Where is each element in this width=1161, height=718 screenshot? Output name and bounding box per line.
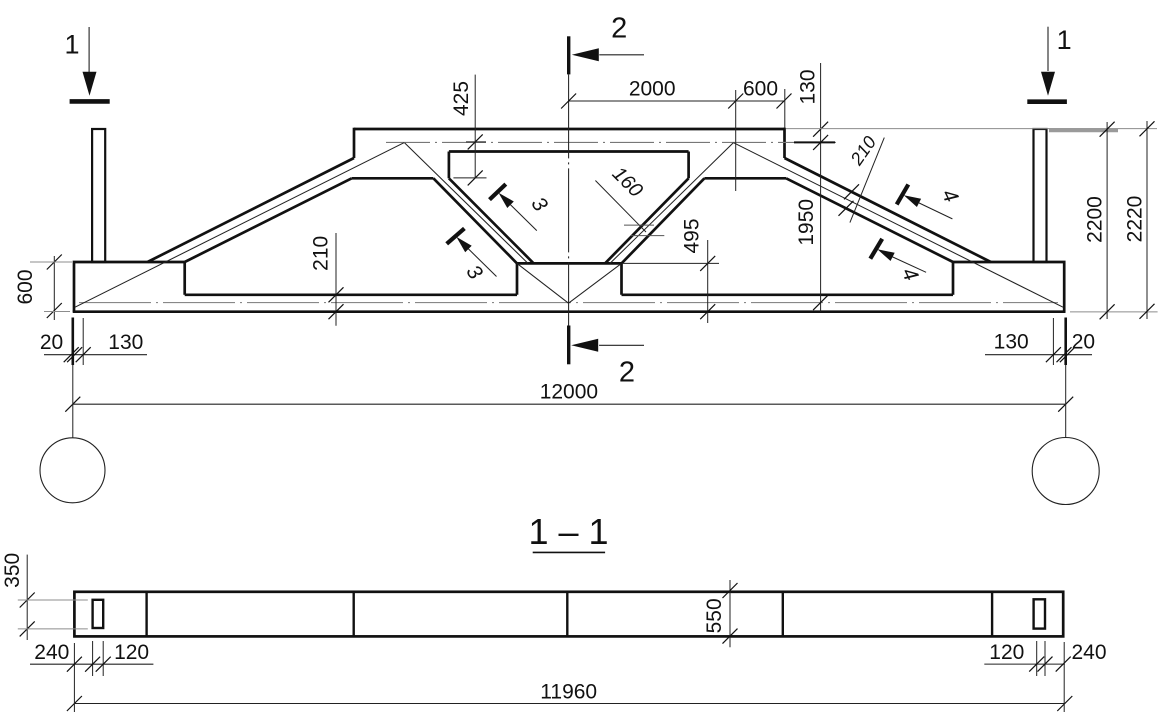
svg-text:160: 160 bbox=[608, 163, 647, 202]
svg-text:130: 130 bbox=[797, 69, 820, 104]
svg-text:20: 20 bbox=[40, 331, 63, 354]
svg-text:240: 240 bbox=[34, 641, 69, 664]
svg-text:350: 350 bbox=[1, 553, 24, 588]
svg-text:2: 2 bbox=[611, 12, 627, 44]
svg-text:2200: 2200 bbox=[1084, 196, 1107, 243]
svg-text:11960: 11960 bbox=[540, 681, 597, 704]
svg-text:130: 130 bbox=[108, 331, 143, 354]
svg-text:20: 20 bbox=[1072, 331, 1095, 354]
svg-text:1 – 1: 1 – 1 bbox=[528, 511, 608, 552]
svg-text:12000: 12000 bbox=[540, 380, 598, 403]
svg-text:2000: 2000 bbox=[629, 77, 676, 100]
svg-text:2220: 2220 bbox=[1124, 196, 1147, 243]
svg-text:240: 240 bbox=[1071, 641, 1106, 664]
svg-text:3: 3 bbox=[461, 261, 487, 284]
svg-text:210: 210 bbox=[846, 133, 880, 170]
svg-text:1: 1 bbox=[64, 30, 79, 60]
svg-text:3: 3 bbox=[526, 193, 552, 216]
svg-text:495: 495 bbox=[681, 218, 704, 253]
svg-text:120: 120 bbox=[114, 641, 149, 664]
svg-text:4: 4 bbox=[937, 186, 963, 206]
svg-text:600: 600 bbox=[743, 77, 778, 100]
svg-text:130: 130 bbox=[994, 331, 1029, 354]
svg-text:550: 550 bbox=[703, 598, 726, 633]
svg-text:4: 4 bbox=[897, 264, 923, 284]
svg-text:425: 425 bbox=[450, 81, 473, 116]
svg-text:210: 210 bbox=[310, 236, 333, 271]
svg-text:2: 2 bbox=[619, 356, 635, 388]
svg-text:1: 1 bbox=[1057, 25, 1072, 55]
svg-text:600: 600 bbox=[14, 269, 37, 304]
svg-text:1950: 1950 bbox=[795, 199, 818, 246]
svg-text:120: 120 bbox=[989, 641, 1024, 664]
